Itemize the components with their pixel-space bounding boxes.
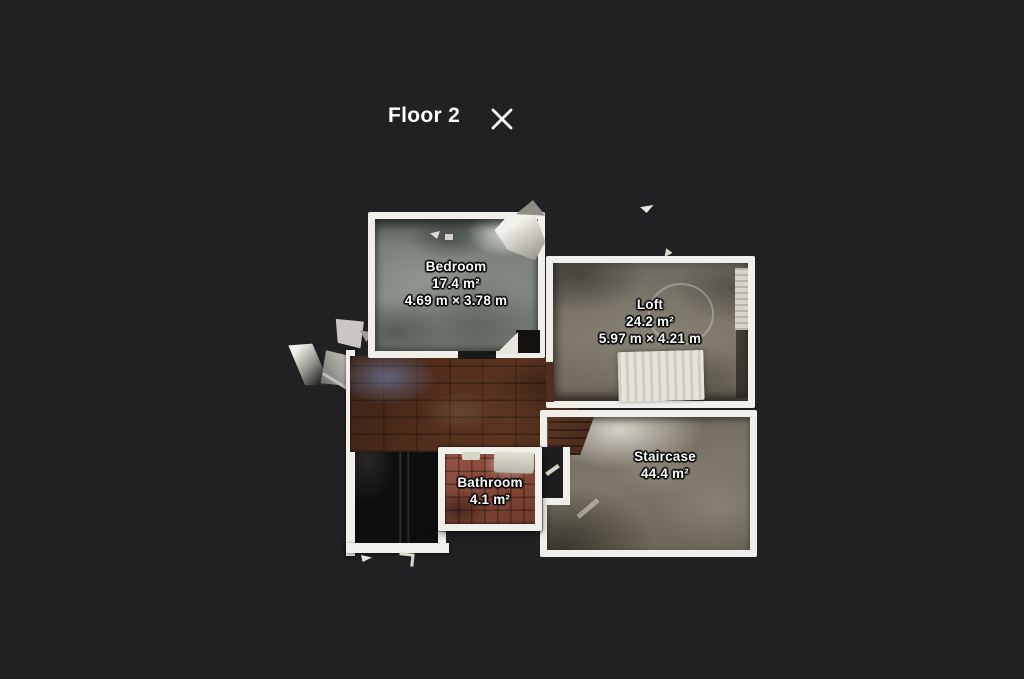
- scan-viewer-canvas: Floor 2: [0, 0, 1024, 679]
- doorway-gap: [458, 351, 496, 359]
- bathtub: [494, 451, 535, 473]
- unscanned-room: [355, 452, 438, 543]
- wall-notch: [542, 447, 570, 505]
- doorway-gap: [546, 362, 554, 402]
- wall-segment: [346, 543, 449, 553]
- scan-artifact: [516, 199, 547, 216]
- radiator: [735, 268, 748, 330]
- mattress: [617, 350, 704, 402]
- floorplan: Bedroom 17.4 m² 4.69 m × 3.78 m Loft 24.…: [0, 0, 1024, 679]
- scan-artifact: [361, 555, 372, 562]
- sink: [462, 452, 480, 460]
- scan-artifact: [398, 552, 414, 566]
- floor-ring-mark: [648, 283, 714, 345]
- scan-void: [736, 330, 748, 398]
- scan-artifact: [445, 234, 453, 240]
- scan-void: [516, 330, 540, 353]
- scan-artifact: [639, 203, 653, 214]
